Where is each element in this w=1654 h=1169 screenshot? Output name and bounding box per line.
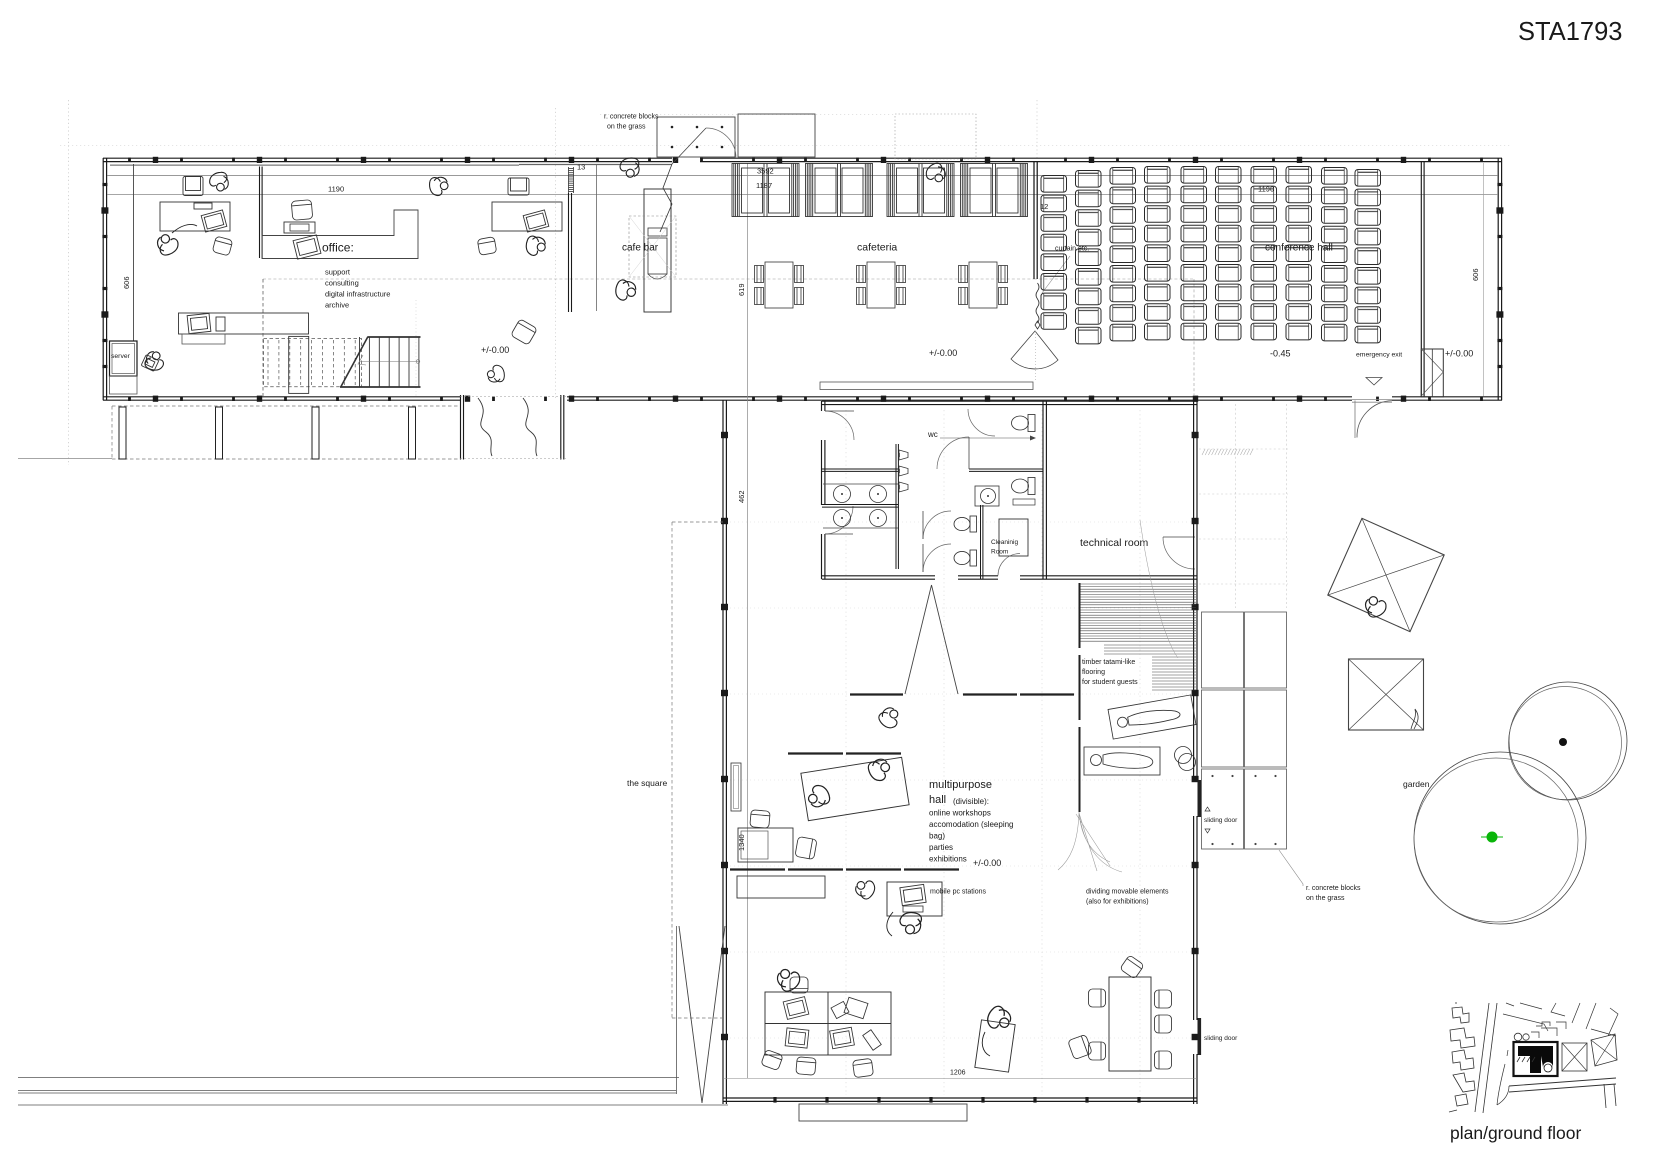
svg-text:flooring: flooring <box>1082 669 1105 676</box>
svg-text:accomodation (sleeping: accomodation (sleeping <box>929 820 1014 829</box>
svg-text:timber tatami-like: timber tatami-like <box>1082 659 1135 666</box>
svg-text:dividing movable elements: dividing movable elements <box>1086 889 1169 896</box>
svg-text:conference hall: conference hall <box>1265 243 1333 254</box>
svg-text:exhibitions: exhibitions <box>929 855 967 864</box>
svg-text:archive: archive <box>325 301 349 310</box>
svg-text:office:: office: <box>322 241 354 255</box>
svg-text:sliding door: sliding door <box>1204 1035 1238 1042</box>
svg-text:parties: parties <box>929 843 953 852</box>
svg-text:digital infrastructure: digital infrastructure <box>325 290 390 299</box>
svg-text:STA1793: STA1793 <box>1518 18 1622 46</box>
svg-text:garden: garden <box>1403 779 1430 789</box>
svg-text:wc: wc <box>927 430 938 439</box>
svg-text:emergency exit: emergency exit <box>1356 352 1402 359</box>
svg-text:(divisible):: (divisible): <box>953 797 989 806</box>
svg-text:r. concrete blocks: r. concrete blocks <box>1306 885 1361 892</box>
svg-text:13: 13 <box>577 163 585 172</box>
svg-text:mobile pc stations: mobile pc stations <box>930 889 987 896</box>
svg-text:1190: 1190 <box>328 185 344 194</box>
svg-text:606: 606 <box>122 276 131 289</box>
svg-text:+/-0.00: +/-0.00 <box>1445 349 1473 359</box>
svg-text:online workshops: online workshops <box>929 809 991 818</box>
svg-text:1206: 1206 <box>950 1070 966 1077</box>
svg-text:cafe bar: cafe bar <box>622 243 659 254</box>
svg-text:plan/ground floor: plan/ground floor <box>1450 1123 1582 1143</box>
svg-text:(also for exhibitions): (also for exhibitions) <box>1086 899 1149 906</box>
svg-text:server: server <box>111 353 131 360</box>
svg-text:consulting: consulting <box>325 279 359 288</box>
svg-text:-0.45: -0.45 <box>1270 349 1291 359</box>
svg-text:sliding door: sliding door <box>1204 817 1238 824</box>
svg-text:technical room: technical room <box>1080 537 1149 549</box>
svg-text:bag): bag) <box>929 832 945 841</box>
svg-text:+/-0.00: +/-0.00 <box>481 345 509 355</box>
svg-text:462: 462 <box>737 490 746 503</box>
svg-text:r. concrete blocks: r. concrete blocks <box>604 114 659 121</box>
svg-text:619: 619 <box>737 283 746 296</box>
svg-text:+/-0.00: +/-0.00 <box>973 858 1001 868</box>
svg-text:Room: Room <box>991 549 1008 556</box>
svg-text:for student guests: for student guests <box>1082 679 1138 686</box>
svg-text:support: support <box>325 268 351 277</box>
svg-text:606: 606 <box>1471 268 1480 281</box>
svg-text:the square: the square <box>627 778 667 788</box>
svg-text:+/-0.00: +/-0.00 <box>929 348 957 358</box>
svg-text:on the grass: on the grass <box>1306 895 1345 902</box>
svg-text:cafeteria: cafeteria <box>857 242 897 254</box>
svg-text:hall: hall <box>929 794 946 806</box>
svg-text:on the grass: on the grass <box>607 124 646 131</box>
svg-text:Cleaninig: Cleaninig <box>991 539 1018 546</box>
svg-text:multipurpose: multipurpose <box>929 779 992 791</box>
